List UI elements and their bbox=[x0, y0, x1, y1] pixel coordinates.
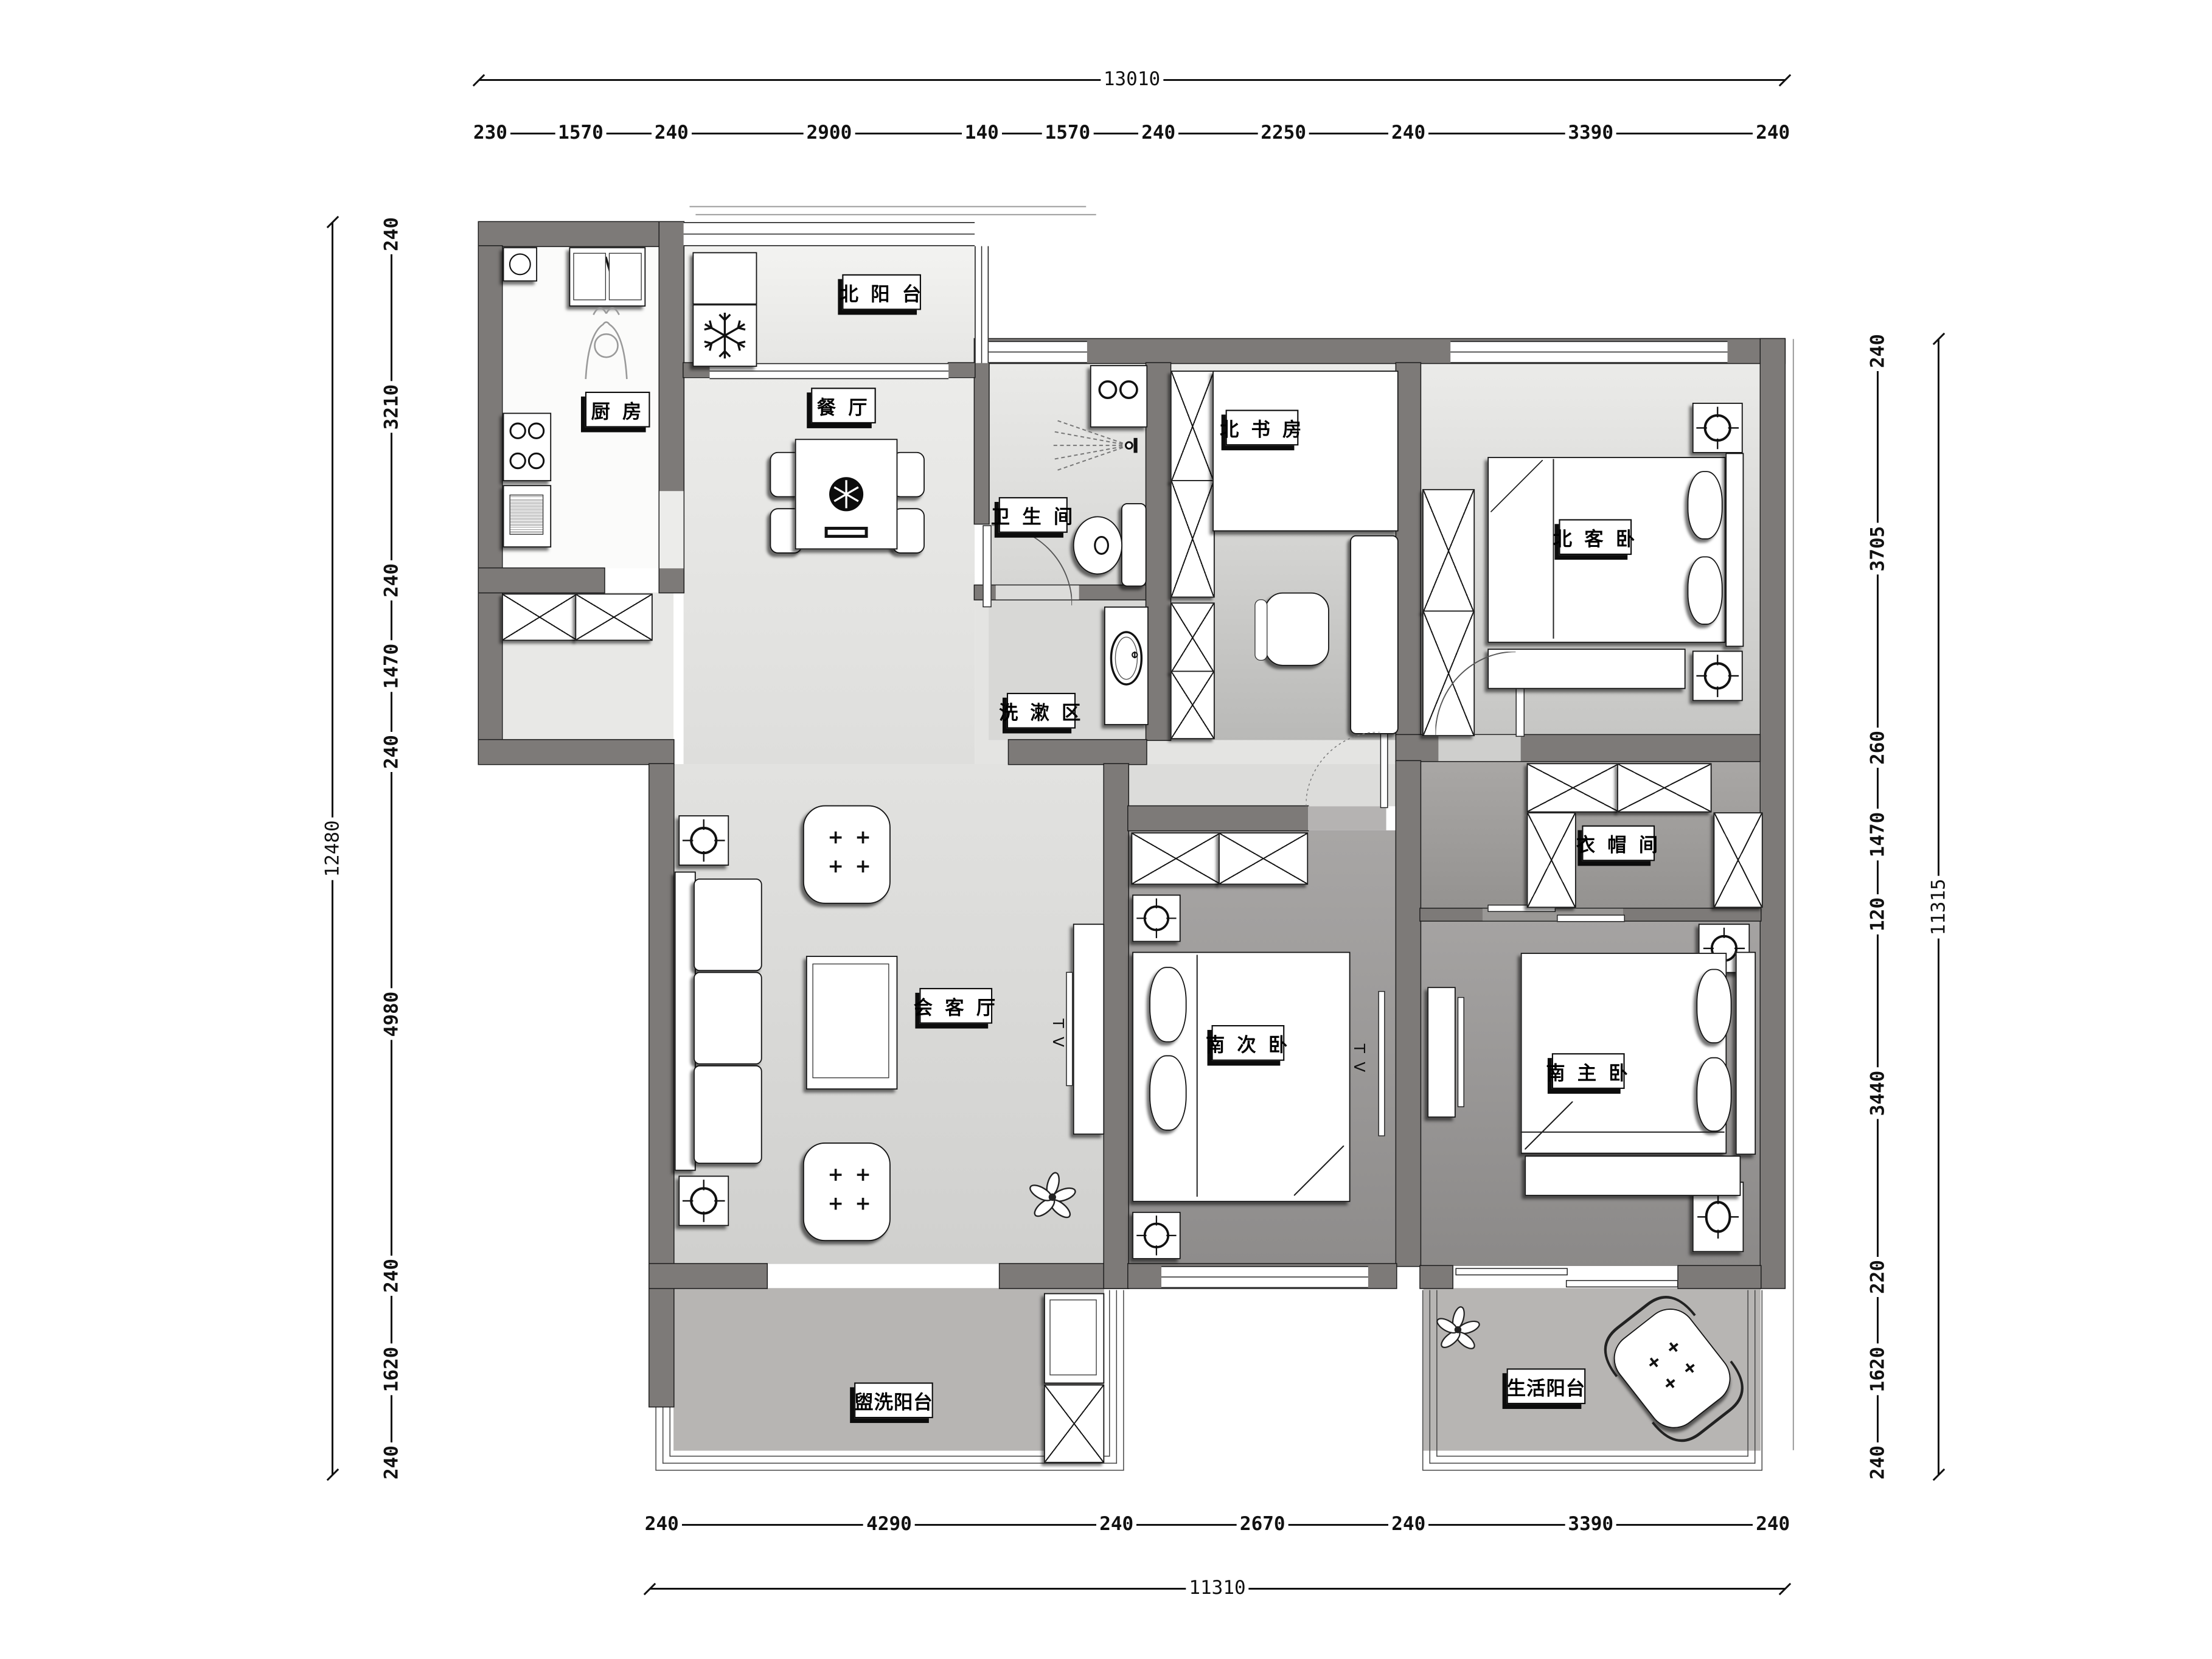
dim-total-right: 11315 bbox=[1938, 339, 1939, 1475]
basin-icon bbox=[1105, 608, 1147, 724]
wall bbox=[1396, 363, 1421, 735]
window-second-bedroom bbox=[1161, 1266, 1368, 1288]
room-label-cloakroom: 衣 帽 间 bbox=[1582, 826, 1655, 861]
kitchen-cabinet bbox=[502, 594, 577, 641]
kitchen-cabinet bbox=[575, 594, 652, 641]
wardrobe bbox=[1132, 832, 1221, 885]
sofa-seat bbox=[694, 972, 762, 1065]
plant-icon bbox=[1023, 1167, 1083, 1228]
window-north-balcony bbox=[684, 222, 975, 246]
wall bbox=[479, 246, 502, 764]
pillow bbox=[1696, 1057, 1731, 1132]
sofa-seat bbox=[694, 878, 762, 971]
wall bbox=[479, 740, 673, 764]
door-arc-second-bedroom bbox=[1306, 732, 1380, 806]
floor-plan-sheet: 13010 2301570240290014015702402250240339… bbox=[0, 0, 2212, 1659]
side-table bbox=[678, 1176, 729, 1226]
wall bbox=[1421, 1266, 1453, 1288]
wall bbox=[975, 363, 989, 524]
wall bbox=[1761, 339, 1785, 1288]
oven bbox=[503, 485, 552, 548]
wall bbox=[479, 222, 684, 246]
tv-panel bbox=[1378, 991, 1385, 1136]
headboard bbox=[1725, 453, 1744, 647]
room-label-wash-area: 洗 漱 区 bbox=[1007, 693, 1076, 729]
centerpiece-icon bbox=[796, 440, 897, 548]
laundry-sink bbox=[1044, 1293, 1104, 1384]
blanket-line bbox=[1521, 1132, 1725, 1133]
eave-line bbox=[690, 206, 1087, 207]
burner-icon bbox=[504, 414, 550, 480]
cloak-cabinet bbox=[1527, 763, 1619, 812]
room-label-life-balcony: 生活阳台 bbox=[1507, 1368, 1586, 1404]
door-opening bbox=[659, 491, 684, 568]
armchair bbox=[803, 1143, 891, 1241]
plant-icon bbox=[1430, 1302, 1486, 1358]
toilet-tank bbox=[1121, 503, 1147, 586]
pillow bbox=[1149, 967, 1186, 1042]
wall bbox=[650, 764, 674, 1407]
wardrobe bbox=[1219, 832, 1308, 885]
toilet-bowl bbox=[1073, 516, 1122, 574]
dim-total-top: 13010 bbox=[479, 79, 1785, 81]
lamp-icon bbox=[680, 1177, 728, 1225]
tv-label: T V bbox=[1351, 1044, 1368, 1074]
nightstand bbox=[1132, 1212, 1181, 1259]
dim-chain-left: 2403210240147024049802401620240 bbox=[391, 222, 392, 1475]
bookshelf bbox=[1170, 602, 1215, 673]
wall bbox=[1104, 764, 1129, 1288]
wall bbox=[1146, 363, 1170, 740]
door-arc-guest-bedroom bbox=[1435, 652, 1515, 735]
room-label-north-balcony: 北 阳 台 bbox=[842, 274, 921, 310]
window-bathroom bbox=[989, 341, 1087, 363]
dim-chain-right: 2403705260147012034402201620240 bbox=[1877, 339, 1879, 1475]
wall bbox=[948, 363, 975, 377]
blanket-fold bbox=[1525, 1101, 1573, 1149]
room-label-south-second-bedroom: 南 次 卧 bbox=[1212, 1025, 1285, 1061]
nightstand bbox=[1692, 403, 1743, 453]
bed-bench bbox=[1487, 649, 1685, 689]
lamp-icon bbox=[1133, 1213, 1180, 1258]
coffee-table bbox=[806, 956, 897, 1090]
cloak-cabinet bbox=[1617, 763, 1711, 812]
armchair bbox=[803, 805, 891, 904]
desk-chair bbox=[1265, 593, 1329, 666]
room-label-south-master-bedroom: 南 主 卧 bbox=[1552, 1053, 1625, 1089]
blanket-fold bbox=[1294, 1146, 1344, 1196]
door-arc-bathroom bbox=[992, 525, 1072, 605]
wall bbox=[1678, 1266, 1761, 1288]
lamp-icon bbox=[1694, 404, 1742, 452]
wall bbox=[479, 568, 604, 593]
dim-chain-top: 23015702402900140157024022502403390240 bbox=[479, 133, 1785, 134]
fridge bbox=[692, 252, 757, 305]
wash-counter bbox=[1104, 607, 1149, 725]
room-label-dining: 餐 厅 bbox=[811, 388, 876, 423]
tv-panel bbox=[1458, 997, 1464, 1107]
dining-table bbox=[795, 439, 898, 549]
room-label-north-guest-bedroom: 北 客 卧 bbox=[1559, 519, 1632, 555]
dim-total-bottom-value: 11310 bbox=[1186, 1579, 1248, 1598]
tv-panel bbox=[1066, 972, 1073, 1087]
sofa-seat bbox=[694, 1065, 762, 1164]
door-opening bbox=[1308, 806, 1386, 830]
tv-label: T V bbox=[1049, 1018, 1067, 1049]
eave-line bbox=[695, 214, 1096, 215]
room-label-north-study: 北 书 房 bbox=[1226, 410, 1299, 446]
tv-cabinet bbox=[1427, 987, 1456, 1118]
nightstand bbox=[1132, 895, 1181, 942]
cloak-cabinet bbox=[1527, 812, 1576, 908]
sofa-back bbox=[675, 872, 696, 1171]
pillow bbox=[1688, 471, 1723, 540]
wall bbox=[1396, 761, 1421, 1266]
stitch-marks-icon bbox=[804, 1144, 889, 1240]
tatami-bed bbox=[1212, 370, 1399, 531]
kitchen-corner-unit bbox=[503, 247, 537, 281]
cloak-cabinet bbox=[1714, 812, 1763, 908]
window-guest-bedroom bbox=[1450, 341, 1727, 363]
door-leaf bbox=[983, 525, 992, 607]
dim-total-bottom: 11310 bbox=[650, 1588, 1785, 1590]
lamp-icon bbox=[1694, 652, 1742, 700]
pillow bbox=[1696, 969, 1731, 1043]
door-leaf bbox=[1380, 733, 1388, 808]
door-opening bbox=[1438, 735, 1520, 761]
nightstand bbox=[1692, 651, 1743, 701]
pillow bbox=[1688, 556, 1723, 625]
dim-total-left-value: 12480 bbox=[324, 817, 343, 880]
stitch-marks-icon bbox=[804, 806, 889, 902]
dim-total-top-value: 13010 bbox=[1101, 70, 1163, 89]
lamp-icon bbox=[680, 816, 728, 864]
dim-chain-bottom: 240429024026702403390240 bbox=[650, 1524, 1785, 1526]
bookshelf bbox=[1170, 671, 1215, 740]
bookshelf bbox=[1170, 480, 1215, 597]
lamp-icon bbox=[1133, 896, 1180, 941]
slider-leaf bbox=[1455, 1268, 1567, 1275]
wardrobe bbox=[1422, 489, 1475, 613]
floor-plan: T V T V bbox=[479, 222, 1785, 1475]
blanket-fold bbox=[1490, 460, 1543, 512]
room-label-living-room: 会 客 厅 bbox=[919, 988, 992, 1024]
dim-total-right-value: 11315 bbox=[1930, 875, 1949, 938]
shower-icon bbox=[1046, 413, 1141, 478]
side-table bbox=[678, 815, 729, 866]
snowflake-icon bbox=[694, 305, 756, 366]
bed-bench bbox=[1525, 1156, 1741, 1196]
eave-line bbox=[1793, 339, 1794, 1450]
wall bbox=[650, 1264, 767, 1289]
room-label-bathroom: 卫 生 间 bbox=[999, 497, 1068, 533]
desk bbox=[1350, 535, 1399, 734]
wall bbox=[1009, 740, 1146, 764]
pillow bbox=[1149, 1056, 1186, 1131]
blanket-line bbox=[1197, 955, 1198, 1197]
laundry-cabinet bbox=[1044, 1385, 1104, 1463]
fridge bbox=[692, 304, 757, 367]
person-icon bbox=[574, 294, 639, 387]
room-label-kitchen: 厨 房 bbox=[585, 392, 650, 428]
bookshelf bbox=[1170, 370, 1215, 482]
slider-leaf bbox=[1557, 915, 1625, 922]
stove bbox=[503, 413, 552, 482]
room-label-laundry-balcony: 盥洗阳台 bbox=[854, 1382, 933, 1418]
window-balcony-side bbox=[975, 246, 989, 363]
dim-total-left: 12480 bbox=[332, 222, 333, 1475]
headboard bbox=[1736, 952, 1756, 1155]
tv-cabinet bbox=[1073, 923, 1104, 1135]
wall bbox=[1129, 806, 1308, 830]
